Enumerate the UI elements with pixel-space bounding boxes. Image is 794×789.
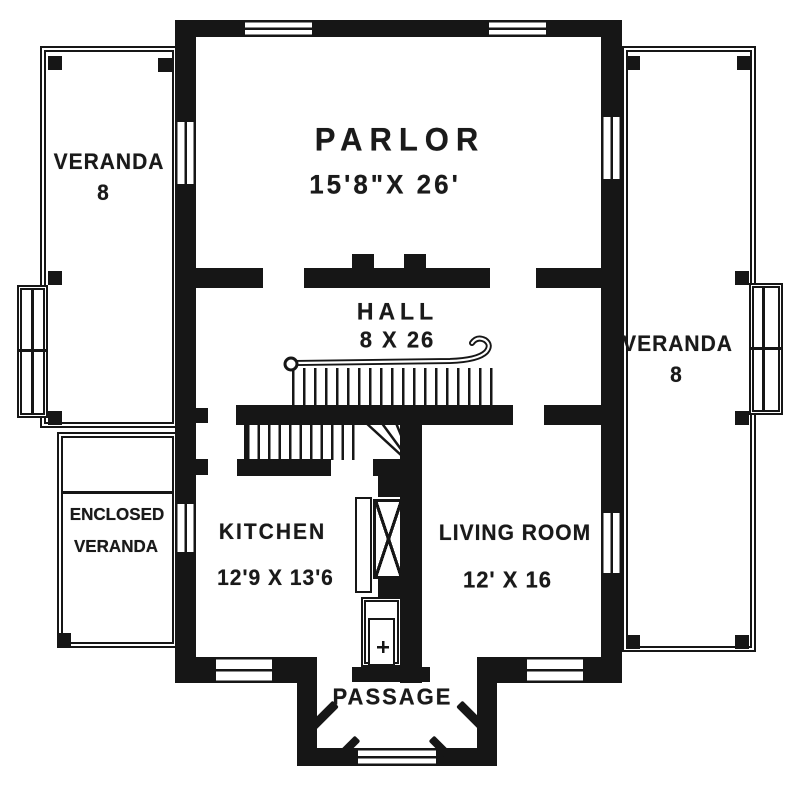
door-jamb [195, 408, 208, 423]
veranda-right-label: VERANDA [615, 333, 740, 358]
veranda-post [735, 271, 749, 285]
veranda-post [735, 411, 749, 425]
door-jamb [404, 254, 426, 269]
window [175, 122, 196, 184]
chimney-flue [373, 499, 404, 579]
door-handle-mark [377, 641, 389, 653]
veranda-left-outline [40, 46, 178, 428]
kitchen-dims: 12'9 X 13'6 [198, 567, 353, 592]
wall-parlor-hall [536, 268, 622, 288]
passage-label: PASSAGE [320, 683, 465, 710]
veranda-left-width: 8 [48, 182, 158, 207]
shaft-block [378, 473, 402, 497]
floor-plan: PARLOR 15'8"X 26' HALL 8 X 26 VERANDA 8 … [0, 0, 794, 789]
window [175, 504, 196, 552]
hall-label: HALL [330, 297, 465, 325]
veranda-post [158, 58, 172, 72]
passage-door-threshold [358, 748, 436, 766]
window [245, 20, 312, 37]
enclosed-veranda-label-2: VERANDA [60, 537, 172, 558]
parlor-label: PARLOR [290, 121, 510, 158]
veranda-post [626, 56, 640, 70]
veranda-right-width: 8 [615, 364, 737, 389]
wall-parlor-hall [304, 268, 490, 288]
window [601, 117, 622, 179]
parlor-dims: 15'8"X 26' [285, 168, 485, 200]
veranda-post [737, 56, 751, 70]
steps-left-mid [19, 349, 46, 352]
enclosed-veranda-divider [62, 491, 173, 494]
veranda-post [57, 633, 71, 647]
wall-left [175, 20, 196, 683]
wall-top [175, 20, 622, 37]
door-jamb [195, 459, 208, 475]
door-jamb [352, 254, 374, 269]
window [527, 657, 583, 683]
living-room-label: LIVING ROOM [425, 522, 605, 547]
veranda-post [735, 635, 749, 649]
kitchen-label: KITCHEN [205, 521, 340, 546]
hall-dims: 8 X 26 [330, 326, 465, 353]
veranda-left-label: VERANDA [48, 151, 170, 176]
wall-hall-lower [544, 405, 622, 425]
window [489, 20, 546, 37]
shaft-block [378, 579, 402, 597]
wall-under-stair [237, 459, 331, 476]
living-room-dims: 12' X 16 [425, 566, 590, 593]
passage-top-bar [352, 667, 430, 682]
window [216, 657, 272, 683]
steps-right-mid [751, 347, 781, 350]
enclosed-veranda-label-1: ENCLOSED [60, 505, 174, 526]
veranda-post [48, 56, 62, 70]
veranda-post [626, 635, 640, 649]
wall-parlor-hall [175, 268, 263, 288]
veranda-post [48, 411, 62, 425]
veranda-post [48, 271, 62, 285]
door-panel [355, 497, 372, 593]
